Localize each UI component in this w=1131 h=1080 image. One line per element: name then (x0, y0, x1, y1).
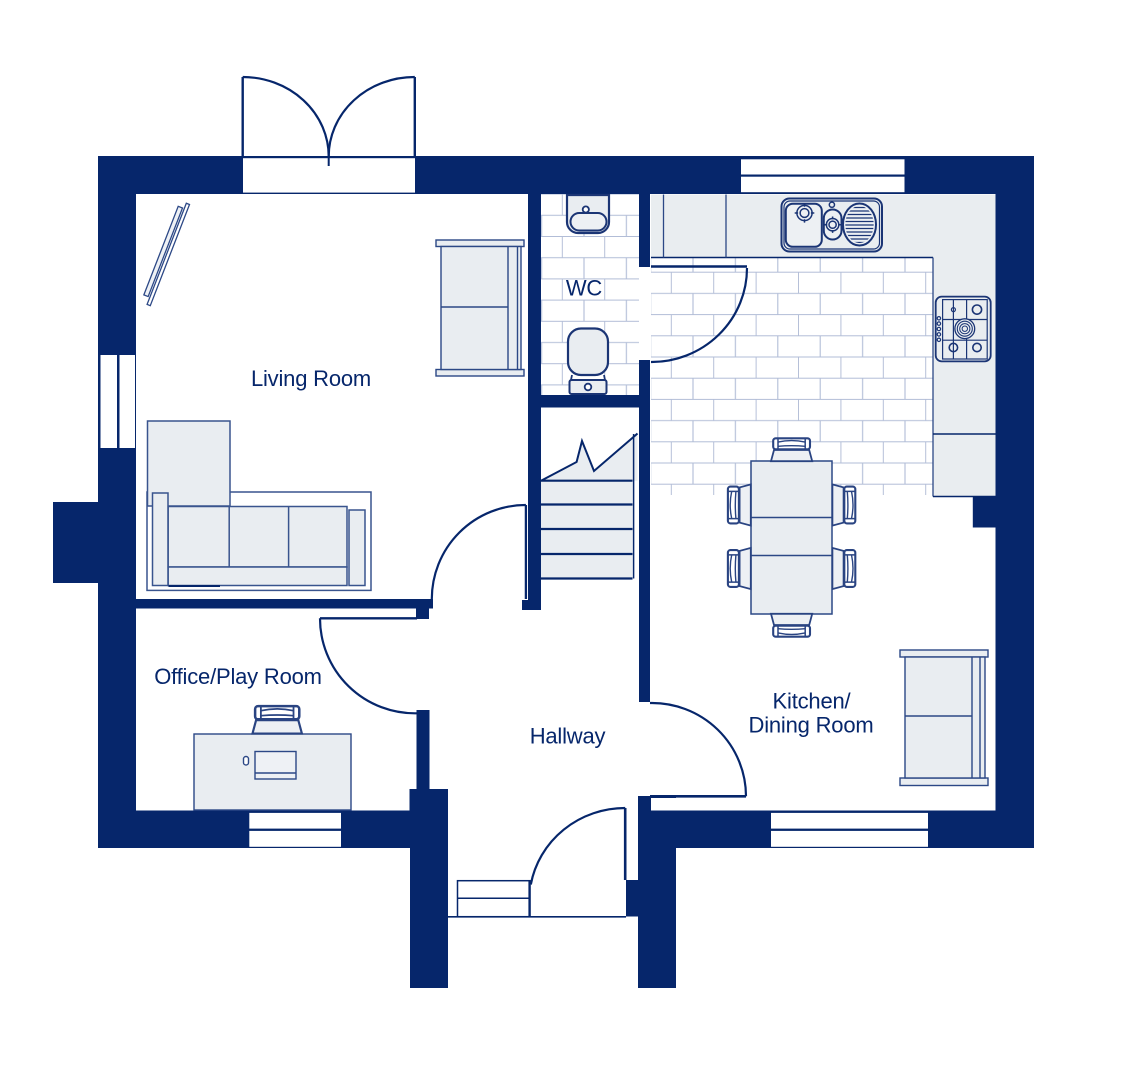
svg-text:WC: WC (566, 276, 603, 301)
svg-text:Kitchen/: Kitchen/ (773, 689, 852, 714)
svg-text:Dining Room: Dining Room (749, 713, 874, 738)
svg-text:Office/Play Room: Office/Play Room (154, 664, 322, 689)
svg-text:Hallway: Hallway (530, 724, 606, 749)
svg-text:Living Room: Living Room (251, 366, 371, 391)
